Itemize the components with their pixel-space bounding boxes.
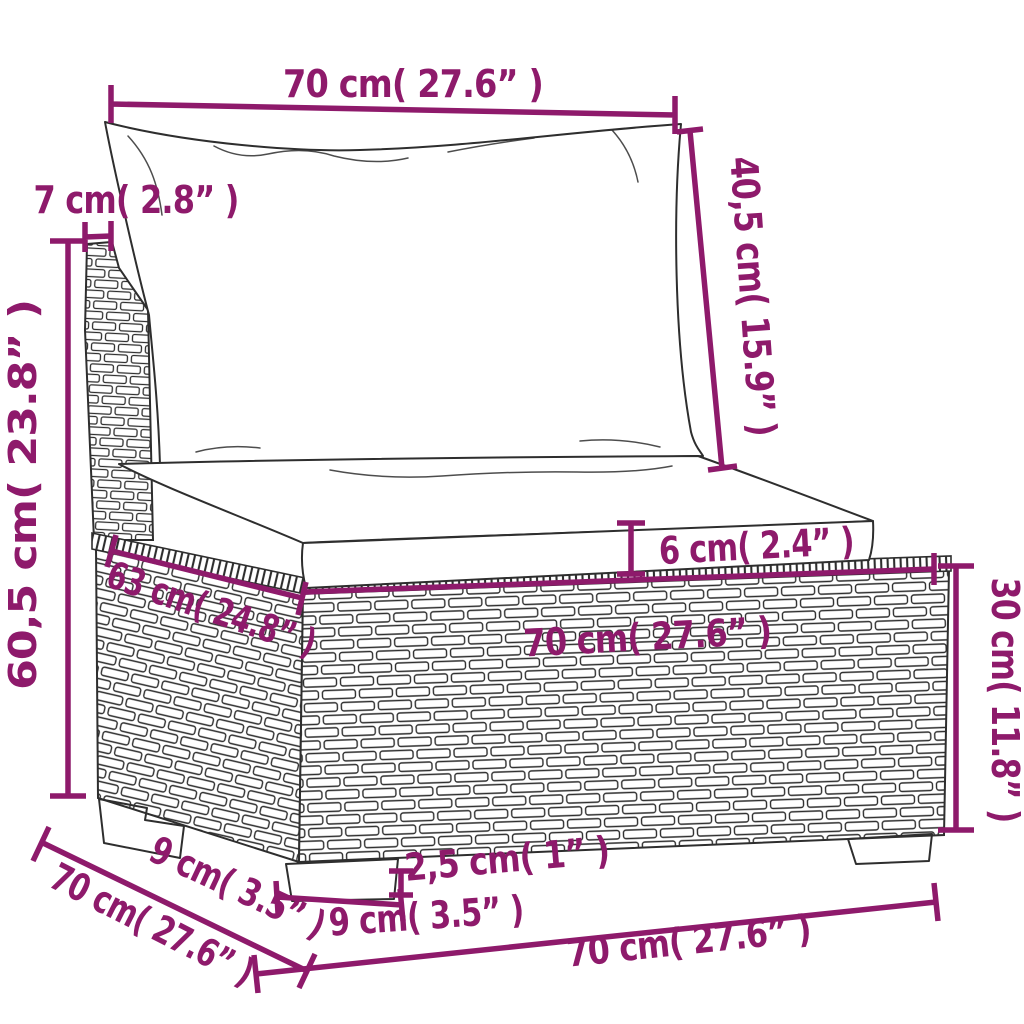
diagram-svg: 70 cm( 27.6” ) 7 cm( 2.8” ) 60,5 cm( 23.… <box>0 0 1024 1024</box>
dimension-base-height: 30 cm( 11.8” ) <box>938 566 1024 830</box>
dimension-top-width-label: 70 cm( 27.6” ) <box>283 62 543 106</box>
dimension-top-width: 70 cm( 27.6” ) <box>111 62 675 134</box>
dimension-base-height-label: 30 cm( 11.8” ) <box>983 578 1024 823</box>
product-dimension-diagram: 70 cm( 27.6” ) 7 cm( 2.8” ) 60,5 cm( 23.… <box>0 0 1024 1024</box>
dimension-back-cushion-height: 40,5 cm( 15.9” ) <box>677 129 785 470</box>
dimension-bottom-width-label: 70 cm( 27.6” ) <box>565 906 813 975</box>
dimension-front-foot-width-label: 9 cm( 3.5” ) <box>327 887 525 944</box>
dimension-total-height-line <box>50 241 86 796</box>
dimension-back-frame-width-label: 7 cm( 2.8” ) <box>34 178 239 222</box>
dimension-back-cushion-height-label: 40,5 cm( 15.9” ) <box>721 155 784 437</box>
sofa-drawing <box>85 122 951 901</box>
back-cushion <box>105 122 703 465</box>
right-foot <box>848 834 932 864</box>
base-front-face <box>299 569 949 862</box>
dimension-total-height-label: 60,5 cm( 23.8” ) <box>1 300 45 690</box>
dimension-total-height: 60,5 cm( 23.8” ) <box>1 241 86 796</box>
